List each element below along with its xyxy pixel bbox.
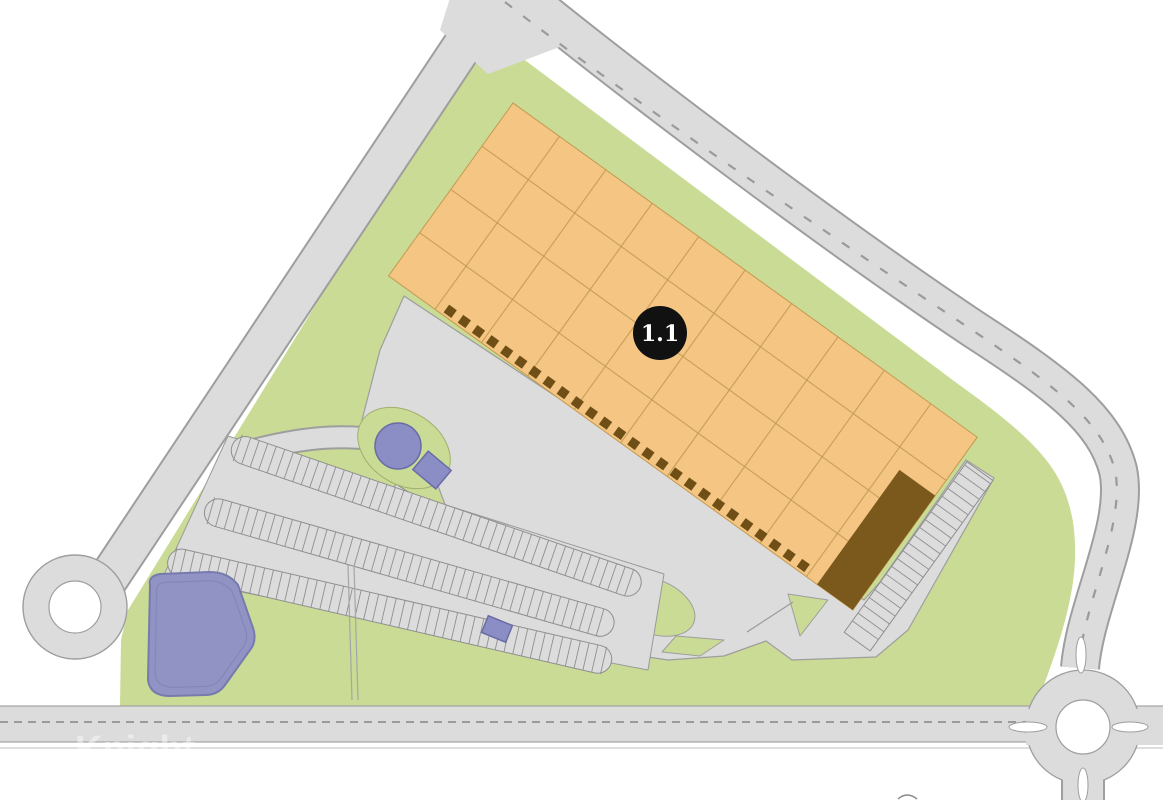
splitter-island-west: [1009, 722, 1047, 732]
roundabout-center-island: [1056, 700, 1110, 754]
splitter-island-east: [1112, 722, 1148, 732]
splitter-island-south: [1078, 768, 1088, 800]
water-tank-circle: [375, 423, 421, 469]
site-plan: 1.1 Knight: [0, 0, 1163, 800]
splitter-island-north: [1076, 637, 1086, 673]
unit-badge[interactable]: 1.1: [633, 306, 687, 360]
left-roundabout: [23, 555, 127, 659]
cutoff-marker-arc: [898, 795, 917, 799]
watermark: Knight: [75, 729, 196, 771]
unit-badge-label: 1.1: [641, 321, 679, 347]
